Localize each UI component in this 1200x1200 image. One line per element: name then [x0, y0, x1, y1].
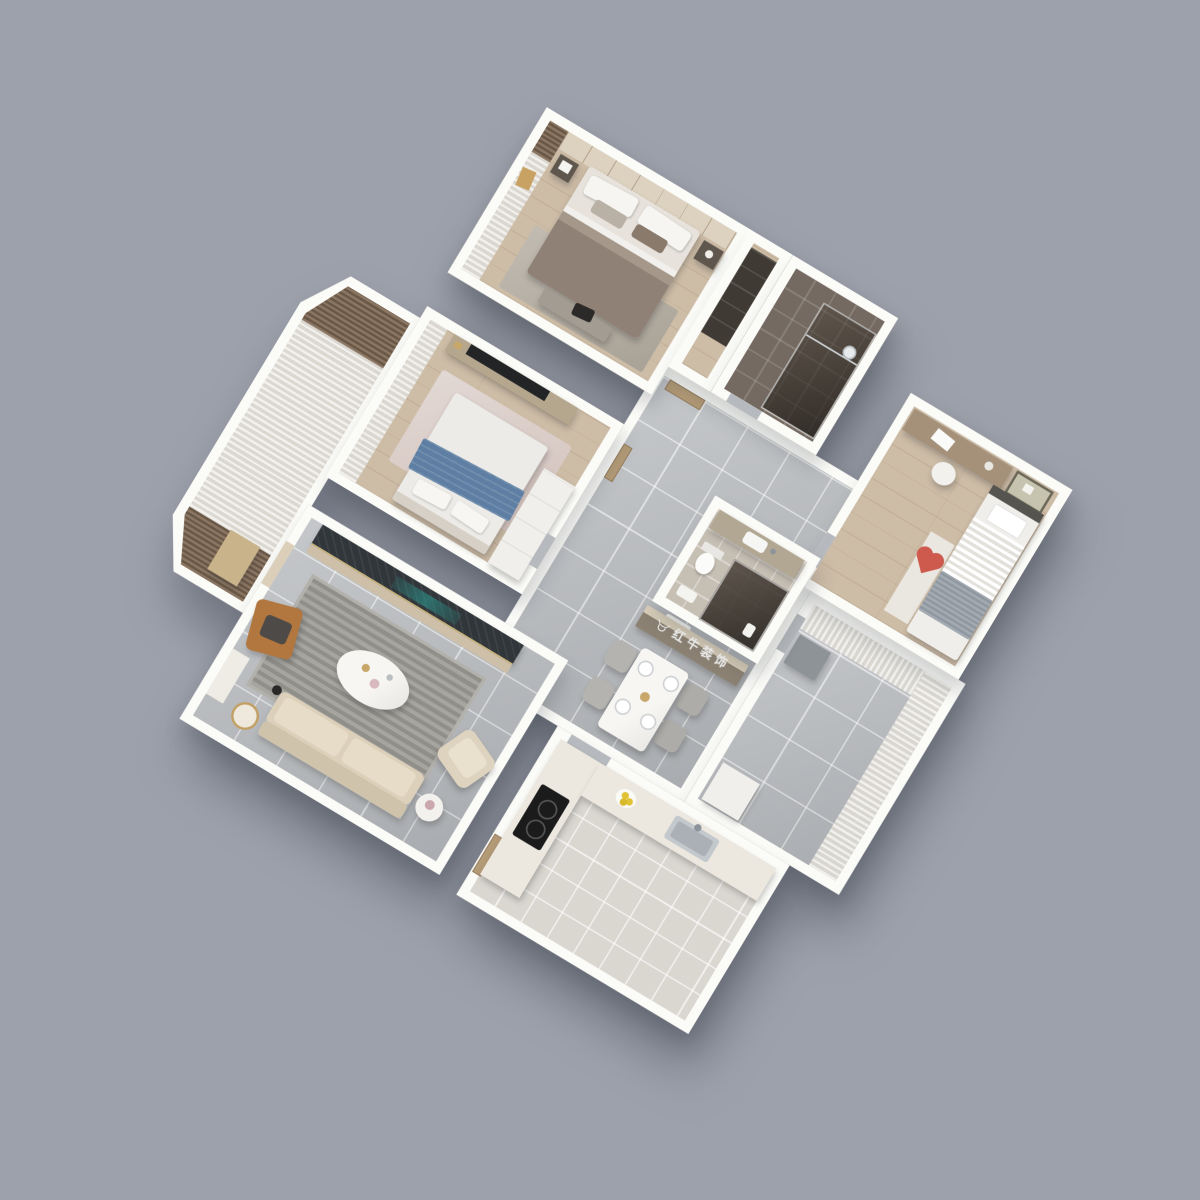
- table-decor: [385, 673, 394, 682]
- console-desk: [206, 649, 250, 704]
- floor-plan-stage: 红牛装饰: [0, 0, 1200, 1200]
- burner: [522, 816, 549, 843]
- decor-box: [453, 341, 463, 351]
- table-decor: [360, 662, 371, 673]
- desk-chair: [927, 458, 960, 490]
- faucet: [769, 548, 777, 556]
- toilet: [689, 541, 725, 580]
- sink-basin: [669, 821, 713, 858]
- table-flowers: [368, 677, 382, 691]
- draped-clothes: [259, 614, 294, 646]
- glass-shower: [760, 302, 877, 440]
- table-lamp: [703, 249, 714, 260]
- sink: [663, 815, 720, 864]
- art-motif: [1022, 483, 1035, 495]
- vanity-sink: [741, 530, 769, 554]
- plate: [612, 695, 635, 718]
- desk-lamp: [983, 460, 995, 472]
- bath-mat: [675, 584, 698, 604]
- towel-basket: [558, 160, 573, 174]
- balcony-cabinet: [701, 762, 760, 821]
- plate: [660, 673, 683, 696]
- apartment-3d-plan: 红牛装饰: [133, 82, 1137, 1081]
- sheer-curtains: [809, 671, 952, 881]
- cooktop: [512, 784, 571, 852]
- plate: [634, 657, 657, 680]
- paper: [931, 428, 956, 452]
- armchair-cushion: [446, 736, 489, 780]
- desk: [902, 409, 1013, 489]
- shower-control: [741, 622, 756, 638]
- centerpiece: [638, 690, 652, 704]
- plate: [637, 711, 660, 734]
- side-table: [410, 788, 448, 826]
- flowers: [423, 798, 437, 812]
- bull-logo-icon: [653, 617, 673, 635]
